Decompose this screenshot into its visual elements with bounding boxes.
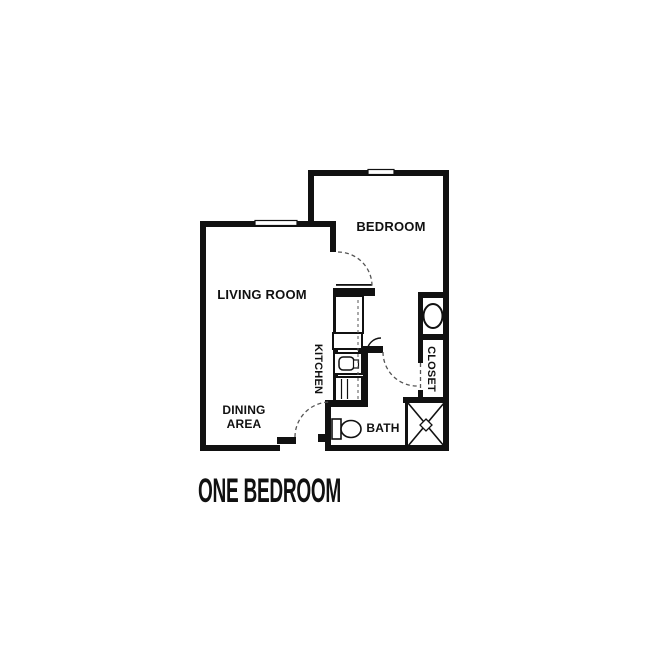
wall-kitchen-right: [363, 348, 368, 402]
wall-bath-left-notch: [318, 434, 326, 442]
dining-area-label-line1: DINING: [222, 403, 265, 417]
kitchen-counter-icon: [335, 296, 363, 333]
vanity-sink-icon: [424, 304, 443, 328]
wall-shower-top: [403, 397, 449, 403]
window-icon-living: [255, 221, 297, 226]
wall-closet-left-upper: [418, 340, 423, 363]
dining-area-label-line2: AREA: [227, 417, 262, 431]
wall-bedroom-door-jamb: [330, 227, 336, 252]
windows: [255, 170, 394, 226]
wall-bottom-left: [200, 445, 280, 451]
bedroom-label: BEDROOM: [356, 219, 425, 234]
kitchen-label: KITCHEN: [312, 344, 324, 394]
bath-label: BATH: [366, 421, 399, 435]
entry-door-arc: [295, 402, 330, 437]
plan-title: ONE BEDROOM: [198, 472, 341, 510]
wall-right-exterior: [443, 170, 449, 451]
floor-plan-page: BEDROOM LIVING ROOM DINING AREA KITCHEN …: [0, 0, 650, 650]
kitchen-sink-basin: [339, 357, 354, 370]
wall-kitchen-header-bar: [333, 288, 375, 296]
toilet-icon: [341, 421, 361, 438]
kitchen-cabinet-icon: [333, 333, 362, 349]
wall-entry-jamb: [277, 437, 296, 444]
wall-left-exterior: [200, 221, 206, 451]
living-room-label: LIVING ROOM: [217, 287, 307, 302]
wall-bath-left: [325, 400, 331, 451]
closet-label: CLOSET: [425, 346, 437, 392]
wall-vanity-left: [418, 292, 423, 340]
bath-door-arc: [383, 352, 417, 386]
floor-plan-svg: BEDROOM LIVING ROOM DINING AREA KITCHEN …: [0, 0, 650, 650]
wall-bedroom-left: [308, 170, 314, 227]
wall-kitchen-header-line: [336, 284, 372, 286]
toilet-tank-icon: [332, 419, 341, 439]
bedroom-door-arc: [338, 252, 372, 286]
wall-shower-left: [405, 403, 408, 449]
wall-vanity-bottom: [418, 334, 449, 340]
shower-x-icon: [408, 403, 444, 446]
window-icon-bedroom: [368, 170, 394, 175]
wall-bottom-right: [325, 445, 449, 451]
